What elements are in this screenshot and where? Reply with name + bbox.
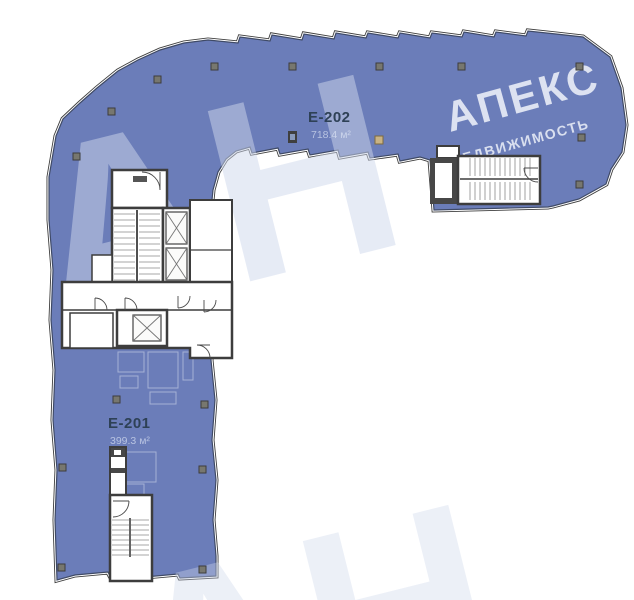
unit-label-e202: E-202 718.4 м² <box>308 109 351 141</box>
unit-e202-area: 718.4 м² <box>311 129 351 141</box>
elevator-shaft-lower <box>117 310 167 346</box>
unit-e201-area: 399.3 м² <box>110 435 150 447</box>
floor-plan-page: АН АН АПЕКС НЕДВИЖИМОСТЬ <box>0 0 634 600</box>
unit-e202-id: E-202 <box>308 109 351 126</box>
elevator-shafts <box>163 208 190 285</box>
unit-e201-id: E-201 <box>108 415 151 432</box>
unit-label-e201: E-201 399.3 м² <box>108 415 151 447</box>
floor-plan: АН АН АПЕКС НЕДВИЖИМОСТЬ <box>0 0 634 600</box>
